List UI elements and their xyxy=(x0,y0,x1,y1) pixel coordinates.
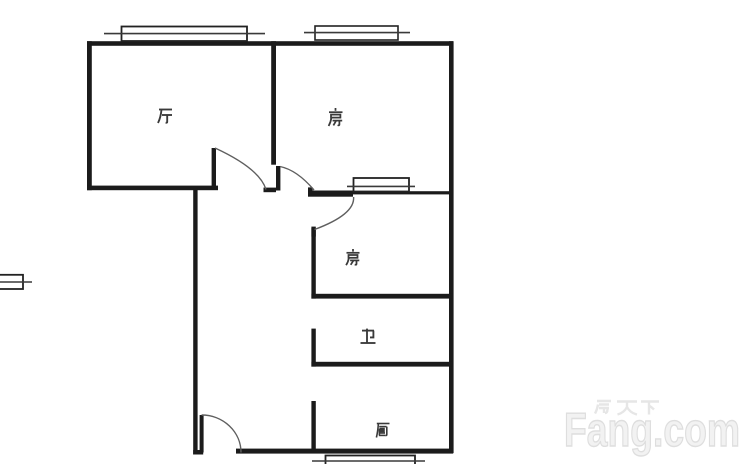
svg-text:Fang.com: Fang.com xyxy=(564,403,740,456)
